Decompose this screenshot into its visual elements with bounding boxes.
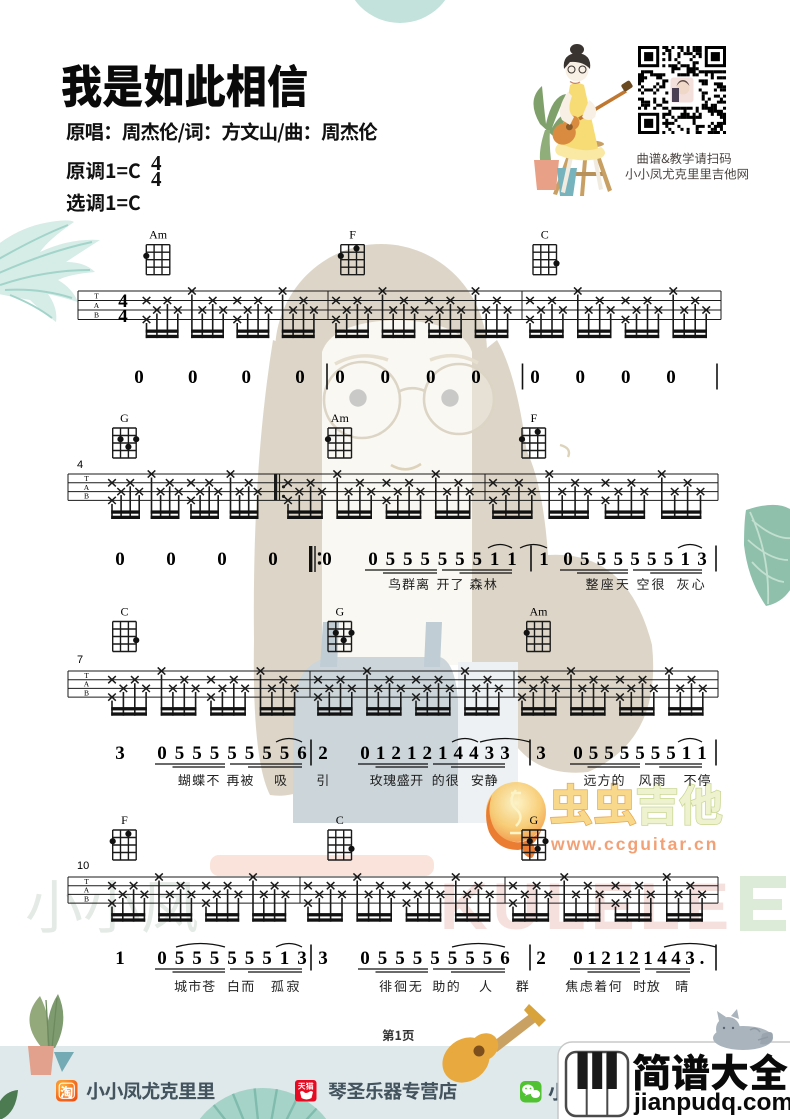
- svg-text:.: .: [700, 948, 705, 969]
- svg-text:4: 4: [151, 167, 162, 191]
- svg-text:4: 4: [454, 743, 464, 764]
- svg-text:Am: Am: [530, 605, 549, 619]
- svg-text:0: 0: [621, 367, 631, 388]
- svg-text:G: G: [529, 813, 538, 827]
- svg-text:0: 0: [471, 367, 481, 388]
- svg-text:0: 0: [188, 367, 198, 388]
- svg-text:6: 6: [297, 743, 307, 764]
- svg-text:5: 5: [472, 549, 482, 570]
- svg-text:4: 4: [118, 306, 128, 327]
- svg-text:F: F: [349, 228, 356, 242]
- svg-text:5: 5: [666, 743, 676, 764]
- svg-text:5: 5: [597, 549, 607, 570]
- svg-text:5: 5: [378, 948, 388, 969]
- svg-text:0: 0: [322, 549, 332, 570]
- svg-text:Am: Am: [331, 411, 350, 425]
- svg-text:5: 5: [448, 948, 458, 969]
- svg-text:0: 0: [360, 948, 370, 969]
- svg-text:0: 0: [335, 367, 345, 388]
- svg-text:C: C: [541, 228, 549, 242]
- svg-text:3: 3: [485, 743, 495, 764]
- svg-text:B: B: [94, 310, 99, 319]
- svg-text:0: 0: [426, 367, 436, 388]
- svg-text:3: 3: [318, 948, 328, 969]
- svg-text:3: 3: [697, 549, 707, 570]
- svg-text:G: G: [335, 605, 344, 619]
- svg-text:0: 0: [242, 367, 252, 388]
- svg-text:0: 0: [217, 549, 227, 570]
- svg-text:5: 5: [280, 743, 290, 764]
- svg-text:5: 5: [192, 743, 202, 764]
- svg-text:0: 0: [115, 549, 125, 570]
- svg-text:5: 5: [483, 948, 493, 969]
- svg-text:3: 3: [297, 948, 307, 969]
- svg-text:6: 6: [500, 948, 510, 969]
- svg-text:0: 0: [530, 367, 540, 388]
- svg-text:2: 2: [391, 743, 401, 764]
- svg-text:3: 3: [115, 743, 125, 764]
- svg-text:jianpudq.com: jianpudq.com: [633, 1089, 790, 1116]
- svg-text:0: 0: [573, 743, 583, 764]
- svg-text:G: G: [120, 411, 129, 425]
- svg-text:A: A: [84, 483, 90, 492]
- svg-text:C: C: [336, 813, 344, 827]
- svg-text:4: 4: [77, 459, 83, 471]
- svg-text:5: 5: [620, 743, 630, 764]
- svg-text:0: 0: [573, 948, 583, 969]
- svg-text:0: 0: [157, 948, 167, 969]
- svg-text:2: 2: [318, 743, 328, 764]
- svg-text:T: T: [94, 291, 99, 300]
- svg-text:5: 5: [604, 743, 614, 764]
- svg-text:2: 2: [422, 743, 432, 764]
- svg-text:T: T: [84, 474, 89, 483]
- svg-text:5: 5: [438, 549, 448, 570]
- svg-text:2: 2: [629, 948, 639, 969]
- svg-text:5: 5: [413, 948, 423, 969]
- svg-text:0: 0: [295, 367, 305, 388]
- svg-text:1: 1: [407, 743, 417, 764]
- svg-text:5: 5: [630, 549, 640, 570]
- svg-text:1: 1: [697, 743, 707, 764]
- svg-text:5: 5: [651, 743, 661, 764]
- svg-text:5: 5: [192, 948, 202, 969]
- svg-text:4: 4: [657, 948, 667, 969]
- svg-text:1: 1: [438, 743, 448, 764]
- svg-text:T: T: [84, 877, 89, 886]
- svg-text:5: 5: [386, 549, 396, 570]
- svg-text:B: B: [84, 492, 89, 501]
- svg-text:0: 0: [666, 367, 676, 388]
- svg-text:4: 4: [671, 948, 681, 969]
- svg-text:1: 1: [682, 743, 692, 764]
- svg-text:C: C: [120, 605, 128, 619]
- svg-text:5: 5: [465, 948, 475, 969]
- svg-text:0: 0: [268, 549, 278, 570]
- svg-text:5: 5: [262, 743, 272, 764]
- svg-text:B: B: [84, 688, 89, 697]
- svg-text:A: A: [94, 301, 100, 310]
- svg-text:1: 1: [115, 948, 125, 969]
- svg-text:5: 5: [455, 549, 465, 570]
- svg-text:5: 5: [210, 743, 220, 764]
- svg-text:2: 2: [601, 948, 611, 969]
- svg-text:5: 5: [647, 549, 657, 570]
- svg-text:0: 0: [576, 367, 586, 388]
- svg-text:0: 0: [368, 549, 378, 570]
- svg-text:F: F: [121, 813, 128, 827]
- svg-text:3: 3: [685, 948, 695, 969]
- svg-text:1: 1: [280, 948, 290, 969]
- svg-text:1: 1: [376, 743, 386, 764]
- svg-text:5: 5: [210, 948, 220, 969]
- svg-text:1: 1: [680, 549, 690, 570]
- svg-text:5: 5: [580, 549, 590, 570]
- svg-text:0: 0: [157, 743, 167, 764]
- svg-text:3: 3: [536, 743, 546, 764]
- svg-text:B: B: [84, 894, 89, 903]
- svg-text:0: 0: [360, 743, 370, 764]
- svg-text:2: 2: [536, 948, 546, 969]
- svg-text:5: 5: [403, 549, 413, 570]
- svg-text:T: T: [84, 671, 89, 680]
- svg-text:1: 1: [587, 948, 597, 969]
- svg-text:Am: Am: [149, 228, 168, 242]
- svg-text:www.ccguitar.cn: www.ccguitar.cn: [550, 834, 718, 854]
- svg-text:7: 7: [77, 654, 83, 666]
- svg-text:0: 0: [134, 367, 144, 388]
- svg-text:5: 5: [395, 948, 405, 969]
- svg-text:5: 5: [420, 549, 430, 570]
- svg-text:5: 5: [175, 743, 185, 764]
- svg-text:1: 1: [490, 549, 500, 570]
- svg-text:5: 5: [664, 549, 674, 570]
- svg-text:1: 1: [643, 948, 653, 969]
- svg-text:5: 5: [227, 948, 237, 969]
- svg-text:0: 0: [563, 549, 573, 570]
- svg-text:1: 1: [507, 549, 517, 570]
- svg-text:5: 5: [589, 743, 599, 764]
- svg-text:A: A: [84, 680, 90, 689]
- svg-text:5: 5: [245, 743, 255, 764]
- svg-text:5: 5: [430, 948, 440, 969]
- svg-text:0: 0: [166, 549, 176, 570]
- svg-text:5: 5: [245, 948, 255, 969]
- svg-text:1: 1: [615, 948, 625, 969]
- svg-text:4: 4: [469, 743, 479, 764]
- svg-text:0: 0: [381, 367, 391, 388]
- svg-text:5: 5: [227, 743, 237, 764]
- svg-text:1: 1: [539, 549, 549, 570]
- svg-text:3: 3: [500, 743, 510, 764]
- svg-text:5: 5: [635, 743, 645, 764]
- svg-text:5: 5: [613, 549, 623, 570]
- svg-text:A: A: [84, 886, 90, 895]
- svg-text:10: 10: [77, 860, 89, 872]
- svg-text:F: F: [530, 411, 537, 425]
- svg-text:5: 5: [262, 948, 272, 969]
- svg-text:5: 5: [175, 948, 185, 969]
